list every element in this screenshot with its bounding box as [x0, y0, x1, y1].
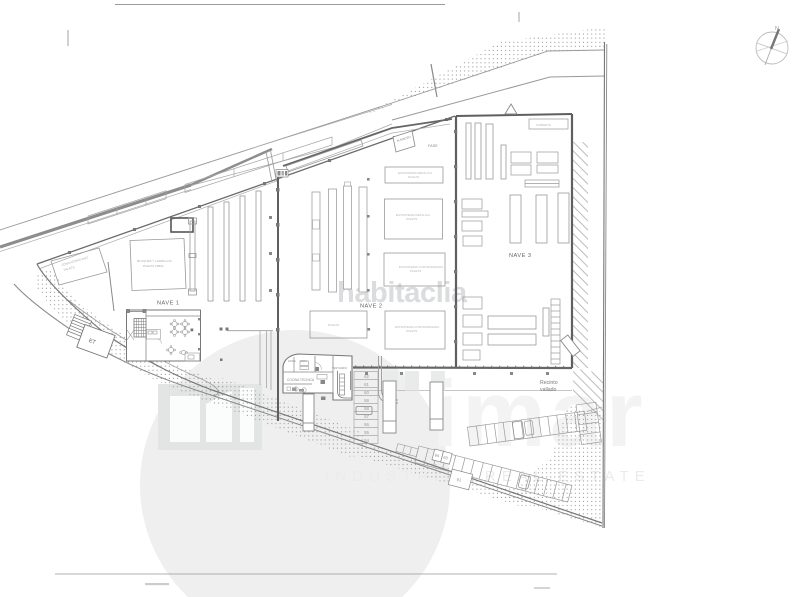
svg-text:55: 55 [364, 430, 369, 435]
svg-text:PALETS: PALETS [410, 269, 421, 273]
svg-text:N: N [775, 26, 779, 32]
svg-text:ZONA: ZONA [288, 359, 296, 363]
svg-text:BLOQUES Y LADRILLOS: BLOQUES Y LADRILLOS [137, 259, 172, 263]
svg-text:COCINA TECNICA: COCINA TECNICA [287, 378, 315, 382]
svg-text:COM: COM [300, 359, 307, 363]
svg-text:PALETS: PALETS [406, 217, 417, 221]
svg-text:VESTUARIO: VESTUARIO [332, 366, 347, 370]
svg-text:60: 60 [364, 390, 369, 395]
svg-text:59: 59 [364, 398, 369, 403]
svg-text:CUBIERTA: CUBIERTA [536, 123, 551, 127]
svg-text:NAVE 2: NAVE 2 [360, 304, 382, 310]
svg-text:FASE: FASE [428, 144, 438, 148]
svg-text:62: 62 [364, 374, 369, 379]
svg-text:vallado: vallado [540, 387, 557, 393]
svg-text:PALETS OBRA: PALETS OBRA [143, 264, 164, 268]
svg-text:habitaclia: habitaclia [337, 277, 468, 309]
svg-text:PALETS: PALETS [408, 175, 419, 179]
svg-text:NAVE 1: NAVE 1 [157, 301, 179, 307]
svg-text:61: 61 [364, 382, 369, 387]
svg-text:56: 56 [364, 422, 369, 427]
svg-text:PALETS: PALETS [406, 329, 417, 333]
svg-text:Recinto: Recinto [540, 380, 558, 386]
svg-text:PALETS: PALETS [328, 323, 339, 327]
svg-text:54: 54 [364, 438, 369, 443]
svg-text:imar: imar [432, 361, 647, 466]
svg-text:NAVE 3: NAVE 3 [509, 253, 531, 259]
